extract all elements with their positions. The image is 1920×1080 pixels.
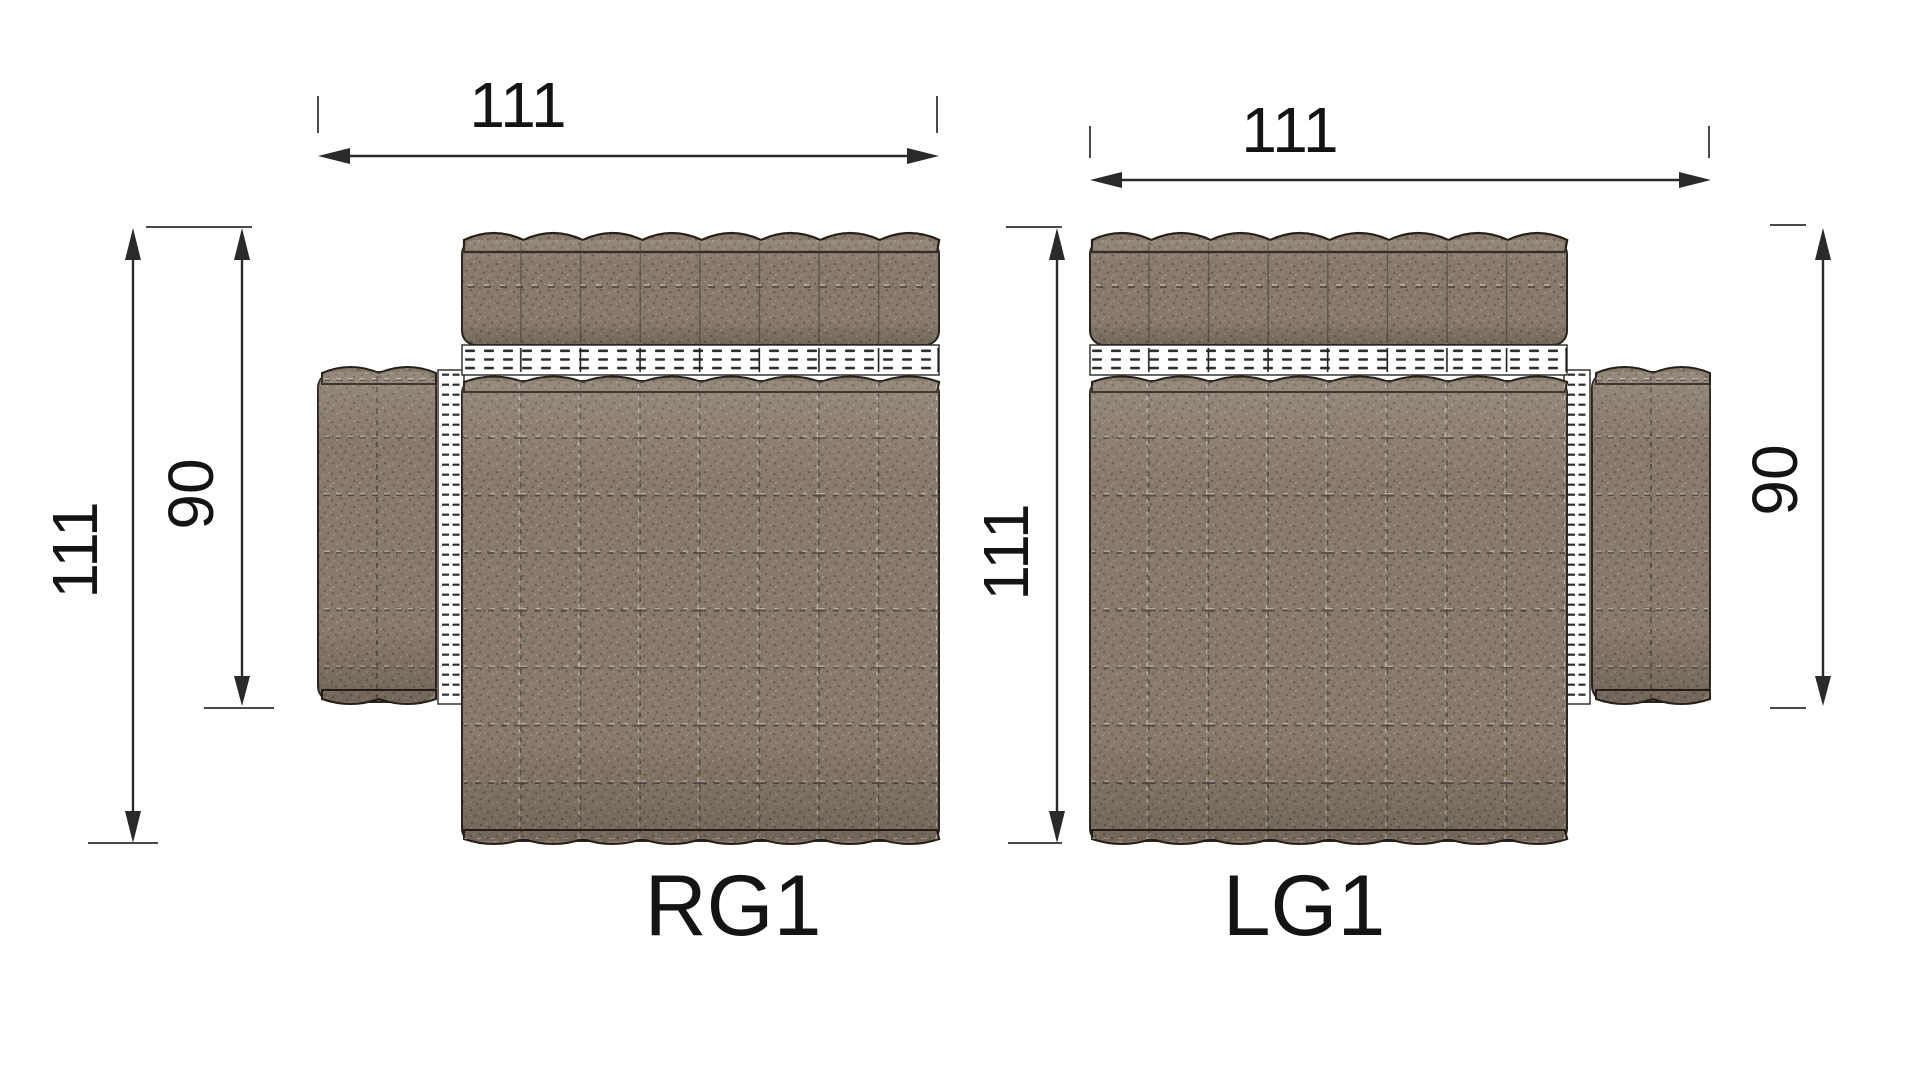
lg1-backrest-shading (1090, 240, 1567, 345)
arrowhead-down-icon (1815, 676, 1831, 706)
lg1-label: LG1 (1223, 858, 1386, 954)
arrowhead-up-icon (1049, 228, 1065, 260)
drawing-canvas: RG1 LG1 111 (0, 0, 1920, 1080)
dim-lg1-arm-depth-value: 90 (1739, 444, 1811, 515)
arrowhead-up-icon (1815, 228, 1831, 260)
rg1-backrest-shading (462, 240, 939, 345)
rg1-armrest-connector-stitching (438, 370, 464, 704)
lg1-armrest-shading (1592, 372, 1710, 702)
arrowhead-up-icon (125, 228, 141, 260)
dim-rg1-arm-depth: 90 (155, 228, 274, 708)
arrowhead-down-icon (1049, 811, 1065, 843)
dim-lg1-height: 111 (970, 227, 1065, 843)
arrowhead-down-icon (234, 676, 250, 706)
dim-rg1-height: 111 (39, 227, 252, 843)
module-rg1: RG1 (318, 233, 939, 954)
arrowhead-left-icon (318, 148, 350, 164)
arrowhead-right-icon (1679, 172, 1711, 188)
rg1-back-connector-ticks (462, 345, 939, 375)
dim-lg1-height-value: 111 (970, 503, 1042, 600)
lg1-seat-shading (1090, 381, 1567, 841)
dim-rg1-height-value: 111 (39, 501, 111, 598)
arrowhead-left-icon (1090, 172, 1122, 188)
rg1-armrest-shading (318, 372, 436, 702)
arrowhead-up-icon (234, 228, 250, 260)
dim-rg1-width: 111 (318, 69, 939, 164)
dim-rg1-width-value: 111 (469, 69, 566, 141)
dim-lg1-width-value: 111 (1241, 94, 1338, 166)
sofa-dimension-drawing: RG1 LG1 111 (0, 0, 1920, 1080)
arrowhead-right-icon (907, 148, 939, 164)
arrowhead-down-icon (125, 811, 141, 843)
rg1-label: RG1 (645, 858, 822, 954)
dim-rg1-arm-depth-value: 90 (155, 458, 227, 529)
module-lg1: LG1 (1090, 233, 1710, 954)
rg1-seat-shading (462, 381, 939, 841)
dim-lg1-width: 111 (1090, 94, 1711, 188)
lg1-back-connector-ticks (1090, 345, 1567, 375)
dim-lg1-arm-depth: 90 (1739, 225, 1831, 708)
